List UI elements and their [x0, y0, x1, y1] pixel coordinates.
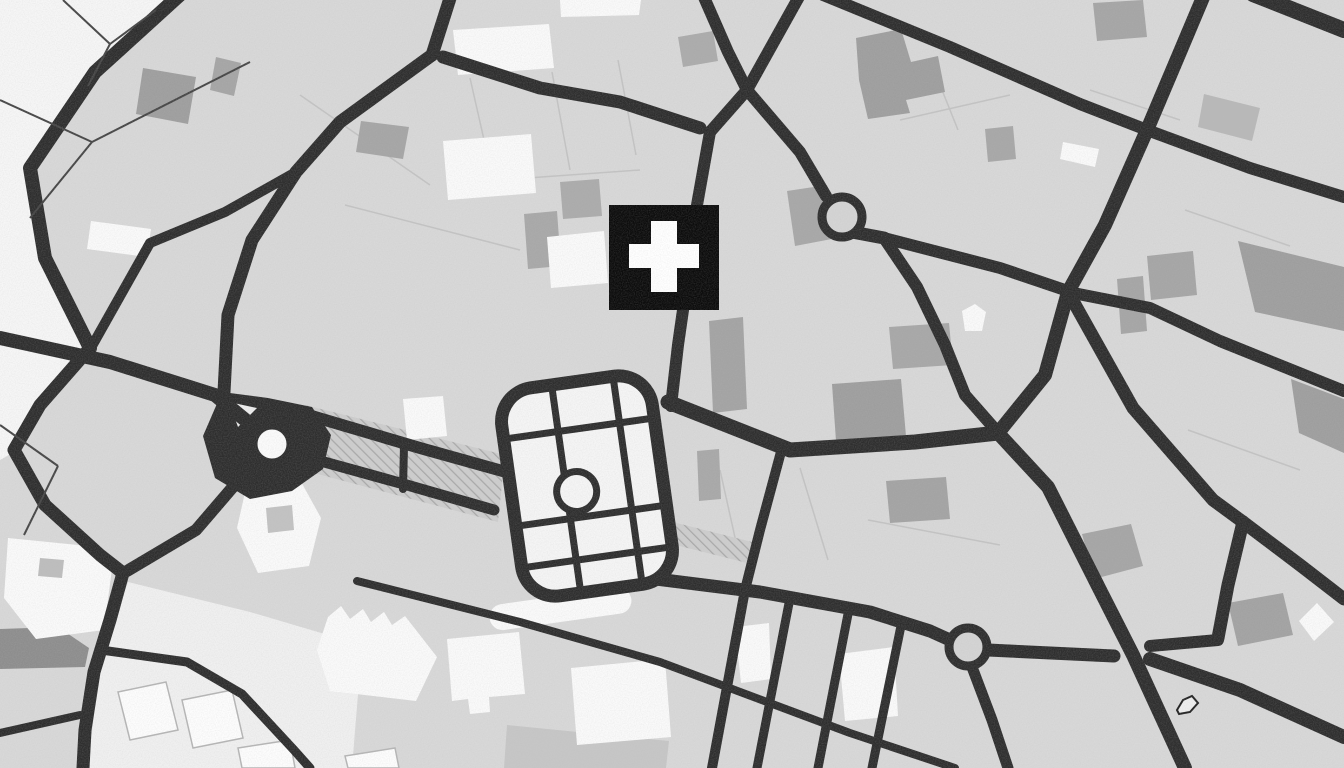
roundabout: [822, 197, 862, 237]
hospital-cross-icon: [629, 244, 699, 268]
map-canvas[interactable]: [0, 0, 1344, 768]
building: [985, 126, 1016, 162]
building: [832, 379, 906, 441]
building: [886, 477, 950, 523]
park-area: [497, 371, 677, 600]
building: [1093, 0, 1147, 41]
building: [571, 659, 671, 745]
road: [988, 650, 1114, 656]
city-map-svg: [0, 0, 1344, 768]
hospital-marker[interactable]: [609, 205, 719, 310]
building: [547, 231, 608, 288]
road: [403, 446, 404, 489]
park-circle: [554, 469, 599, 514]
building: [403, 396, 447, 440]
building: [560, 179, 602, 219]
building-courtyard: [38, 558, 64, 578]
building: [560, 0, 641, 17]
building: [1147, 251, 1197, 300]
outlined-parcel: [182, 690, 243, 748]
roundabout: [253, 425, 291, 463]
building: [709, 317, 747, 413]
building: [678, 31, 718, 67]
roundabout: [949, 628, 987, 666]
building: [697, 449, 721, 501]
road: [1150, 640, 1218, 646]
building-courtyard: [266, 505, 294, 533]
building: [443, 134, 536, 200]
